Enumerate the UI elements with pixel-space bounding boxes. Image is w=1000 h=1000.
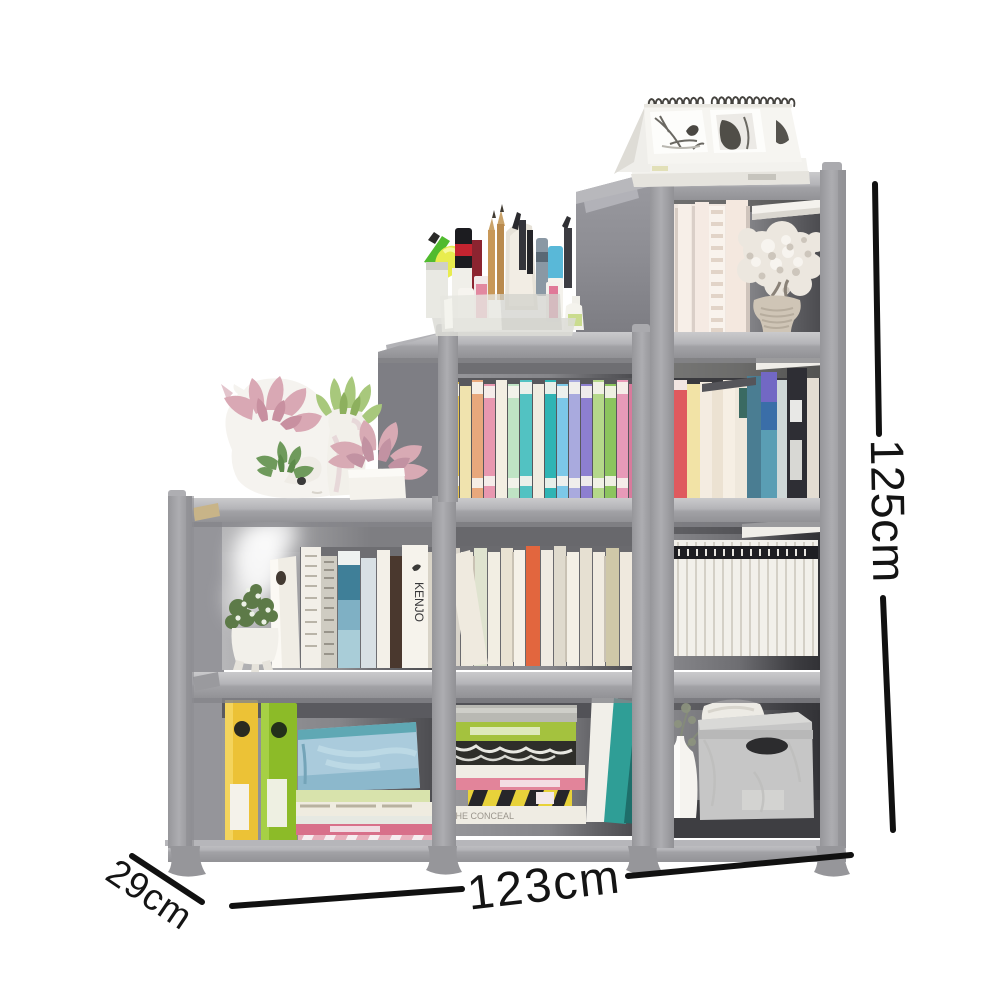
svg-text:THE CONCEAL: THE CONCEAL bbox=[450, 811, 514, 821]
svg-text:KENJO: KENJO bbox=[412, 582, 426, 622]
svg-text:125cm: 125cm bbox=[861, 439, 916, 583]
